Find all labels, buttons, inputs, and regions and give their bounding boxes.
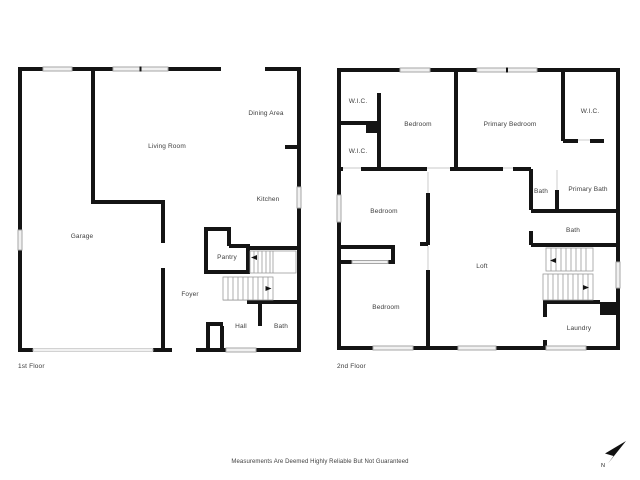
room-label-bath-wide: Bath xyxy=(566,228,580,235)
disclaimer-text: Measurements Are Deemed Highly Reliable … xyxy=(0,459,640,465)
room-label-bath-1st: Bath xyxy=(274,324,288,331)
room-label-primary-bedroom: Primary Bedroom xyxy=(484,122,537,129)
room-label-bedroom-top: Bedroom xyxy=(404,122,431,129)
room-label-loft: Loft xyxy=(476,264,487,271)
room-label-bedroom-bottom: Bedroom xyxy=(372,305,399,312)
room-label-bedroom-middle: Bedroom xyxy=(370,209,397,216)
room-label-laundry: Laundry xyxy=(567,326,592,333)
room-label-primary-bath: Primary Bath xyxy=(568,187,607,194)
second-floor-stairs-icon xyxy=(543,248,593,300)
floor-plan-drawing xyxy=(0,0,640,480)
second-floor-solid-blocks xyxy=(366,121,620,315)
floor-plan-page: Dining Area Living Room Kitchen Garage P… xyxy=(0,0,640,480)
room-label-wic-right: W.I.C. xyxy=(581,109,600,116)
room-label-bath-small: Bath xyxy=(534,189,548,196)
room-label-wic-top-left: W.I.C. xyxy=(349,99,368,106)
room-label-wic-left-lower: W.I.C. xyxy=(349,149,368,156)
room-label-pantry: Pantry xyxy=(217,255,237,262)
north-arrow-label: N xyxy=(601,463,605,469)
room-label-hall: Hall xyxy=(235,324,247,331)
room-label-garage: Garage xyxy=(71,234,94,241)
room-label-dining-area: Dining Area xyxy=(248,111,283,118)
room-label-foyer: Foyer xyxy=(181,292,198,299)
floor-label-2nd: 2nd Floor xyxy=(337,364,366,371)
room-label-kitchen: Kitchen xyxy=(257,197,280,204)
room-label-living-room: Living Room xyxy=(148,144,186,151)
floor-label-1st: 1st Floor xyxy=(18,364,45,371)
